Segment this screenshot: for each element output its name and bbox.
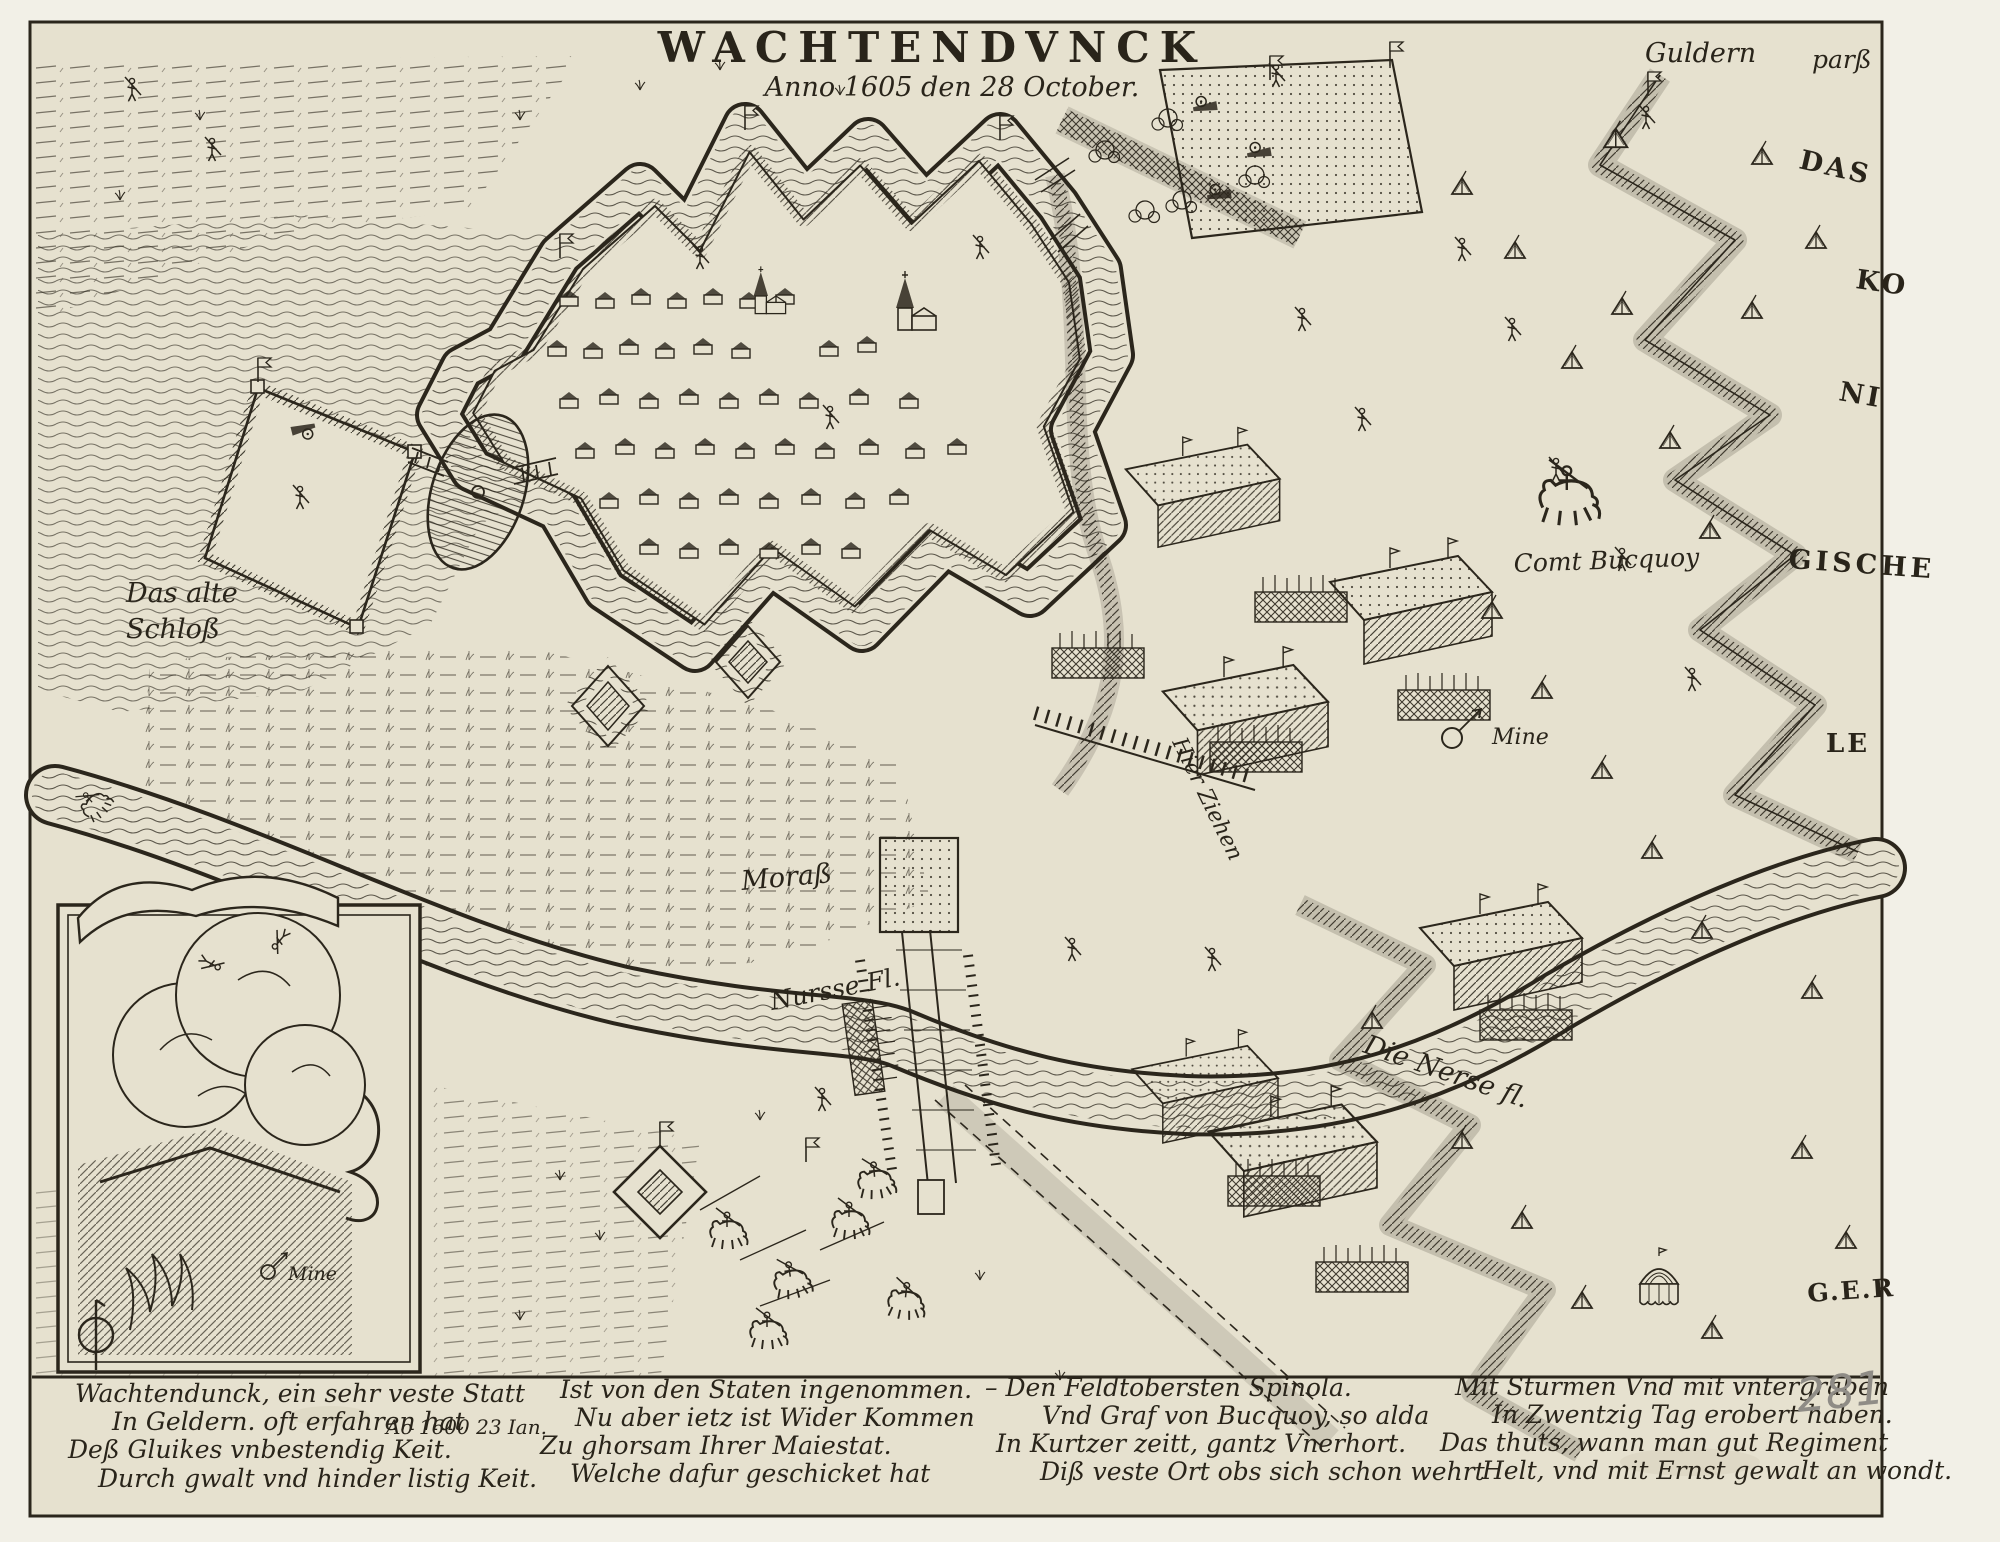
verse-2-3: Zu ghorsam Ihrer Maiestat. xyxy=(539,1431,892,1460)
verse-note: Ao 1600 23 Ian. xyxy=(384,1415,547,1439)
verse-3-2: Vnd Graf von Bucquoy, so alda xyxy=(1042,1401,1429,1430)
label-guldern: Guldern xyxy=(1645,38,1756,69)
verse-4-4: Helt, vnd mit Ernst gewalt an wondt. xyxy=(1481,1456,1952,1485)
page-title: WACHTENDVNCK xyxy=(657,23,1206,72)
verse-2-4: Welche dafur geschicket hat xyxy=(570,1459,931,1488)
verse-1-1: Wachtendunck, ein sehr veste Statt xyxy=(75,1379,526,1408)
engraving-sheet: WACHTENDVNCK Anno 1605 den 28 October. G… xyxy=(0,0,2000,1542)
label-old-castle-1: Das alte xyxy=(125,578,238,609)
label-parss: parß xyxy=(1812,45,1872,74)
verse-3-1: – Den Feldtobersten Spinola. xyxy=(985,1373,1352,1402)
label-mine-inset: Mine xyxy=(287,1263,337,1285)
label-camp-le: LE xyxy=(1826,729,1870,759)
date-line: Anno 1605 den 28 October. xyxy=(762,72,1140,103)
pencil-page-number: 281 xyxy=(1794,1360,1887,1423)
verse-3-3: In Kurtzer zeitt, gantz Vnerhort. xyxy=(995,1429,1406,1458)
verse-1-3: Deß Gluikes vnbestendig Keit. xyxy=(67,1435,452,1464)
label-old-castle-2: Schloß xyxy=(126,614,220,645)
verse-4-3: Das thuts, wann man gut Regiment xyxy=(1439,1428,1889,1457)
verse-2-2: Nu aber ietz ist Wider Kommen xyxy=(574,1403,975,1432)
label-mine-camp: Mine xyxy=(1491,725,1549,750)
verse-1-4: Durch gwalt vnd hinder listig Keit. xyxy=(97,1464,537,1493)
verse-3-4: Diß veste Ort obs sich schon wehrt xyxy=(1039,1457,1486,1486)
label-camp-ger: G.E.R xyxy=(1806,1273,1896,1308)
engraving-scene: WACHTENDVNCK Anno 1605 den 28 October. G… xyxy=(0,0,2000,1542)
verse-2-1: Ist von den Staten ingenommen. xyxy=(559,1375,972,1404)
